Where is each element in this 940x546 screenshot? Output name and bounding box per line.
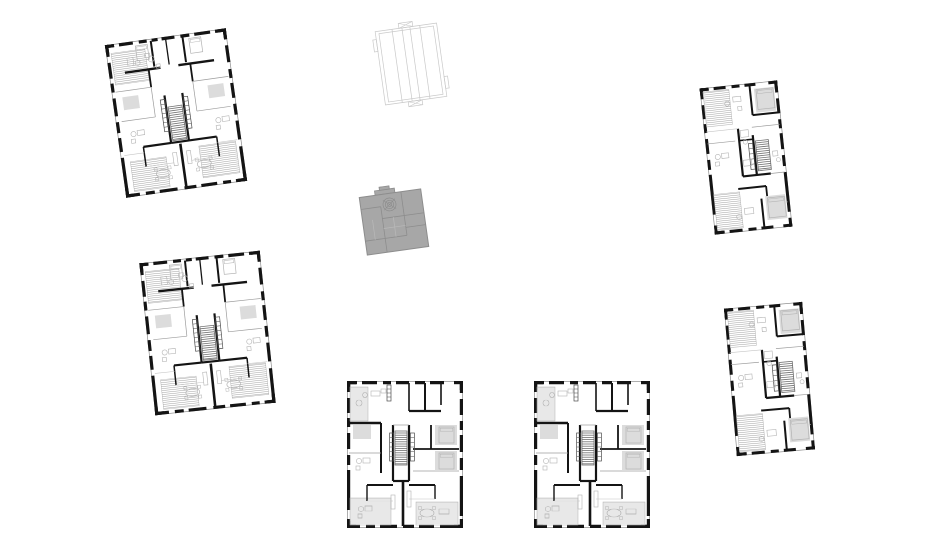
perimeter-walls — [105, 28, 247, 197]
balcony-hatch — [703, 89, 743, 230]
roof-outline-lines — [371, 18, 451, 111]
stair — [755, 139, 771, 170]
stair — [582, 431, 594, 465]
floor-plan-south-left — [347, 381, 463, 528]
stair — [395, 431, 407, 465]
stair — [199, 325, 216, 360]
partition-lines — [706, 124, 785, 179]
floor-plan-east-bottom-drawing — [723, 302, 815, 456]
floor-plan-west-drawing — [139, 250, 275, 416]
furniture — [708, 86, 787, 224]
furniture — [353, 385, 457, 520]
floor-plan-east-bottom — [723, 302, 815, 456]
roof-outline — [375, 23, 447, 105]
floor-plan-south-right — [534, 381, 650, 528]
partition-lines — [729, 346, 807, 401]
floor-plan-south-right-drawing — [534, 381, 650, 528]
floor-plan-west — [139, 250, 275, 416]
roof-outline-drawing — [375, 23, 447, 105]
site-plan-sheet — [0, 0, 940, 546]
floor-plan-north-west — [105, 28, 247, 197]
furniture — [540, 385, 644, 520]
room-lines — [554, 499, 622, 501]
gray-building-mass-drawing — [359, 189, 428, 255]
floor-plan-north-west-drawing — [105, 28, 247, 197]
room-lines — [367, 499, 435, 501]
floor-plan-south-left-drawing — [347, 381, 463, 528]
gray-building-mass — [359, 189, 428, 255]
stair — [779, 361, 795, 392]
floor-plan-east-top — [700, 80, 793, 234]
furniture — [732, 308, 810, 446]
floor-plan-east-top-drawing — [700, 80, 793, 234]
closets — [160, 96, 192, 132]
